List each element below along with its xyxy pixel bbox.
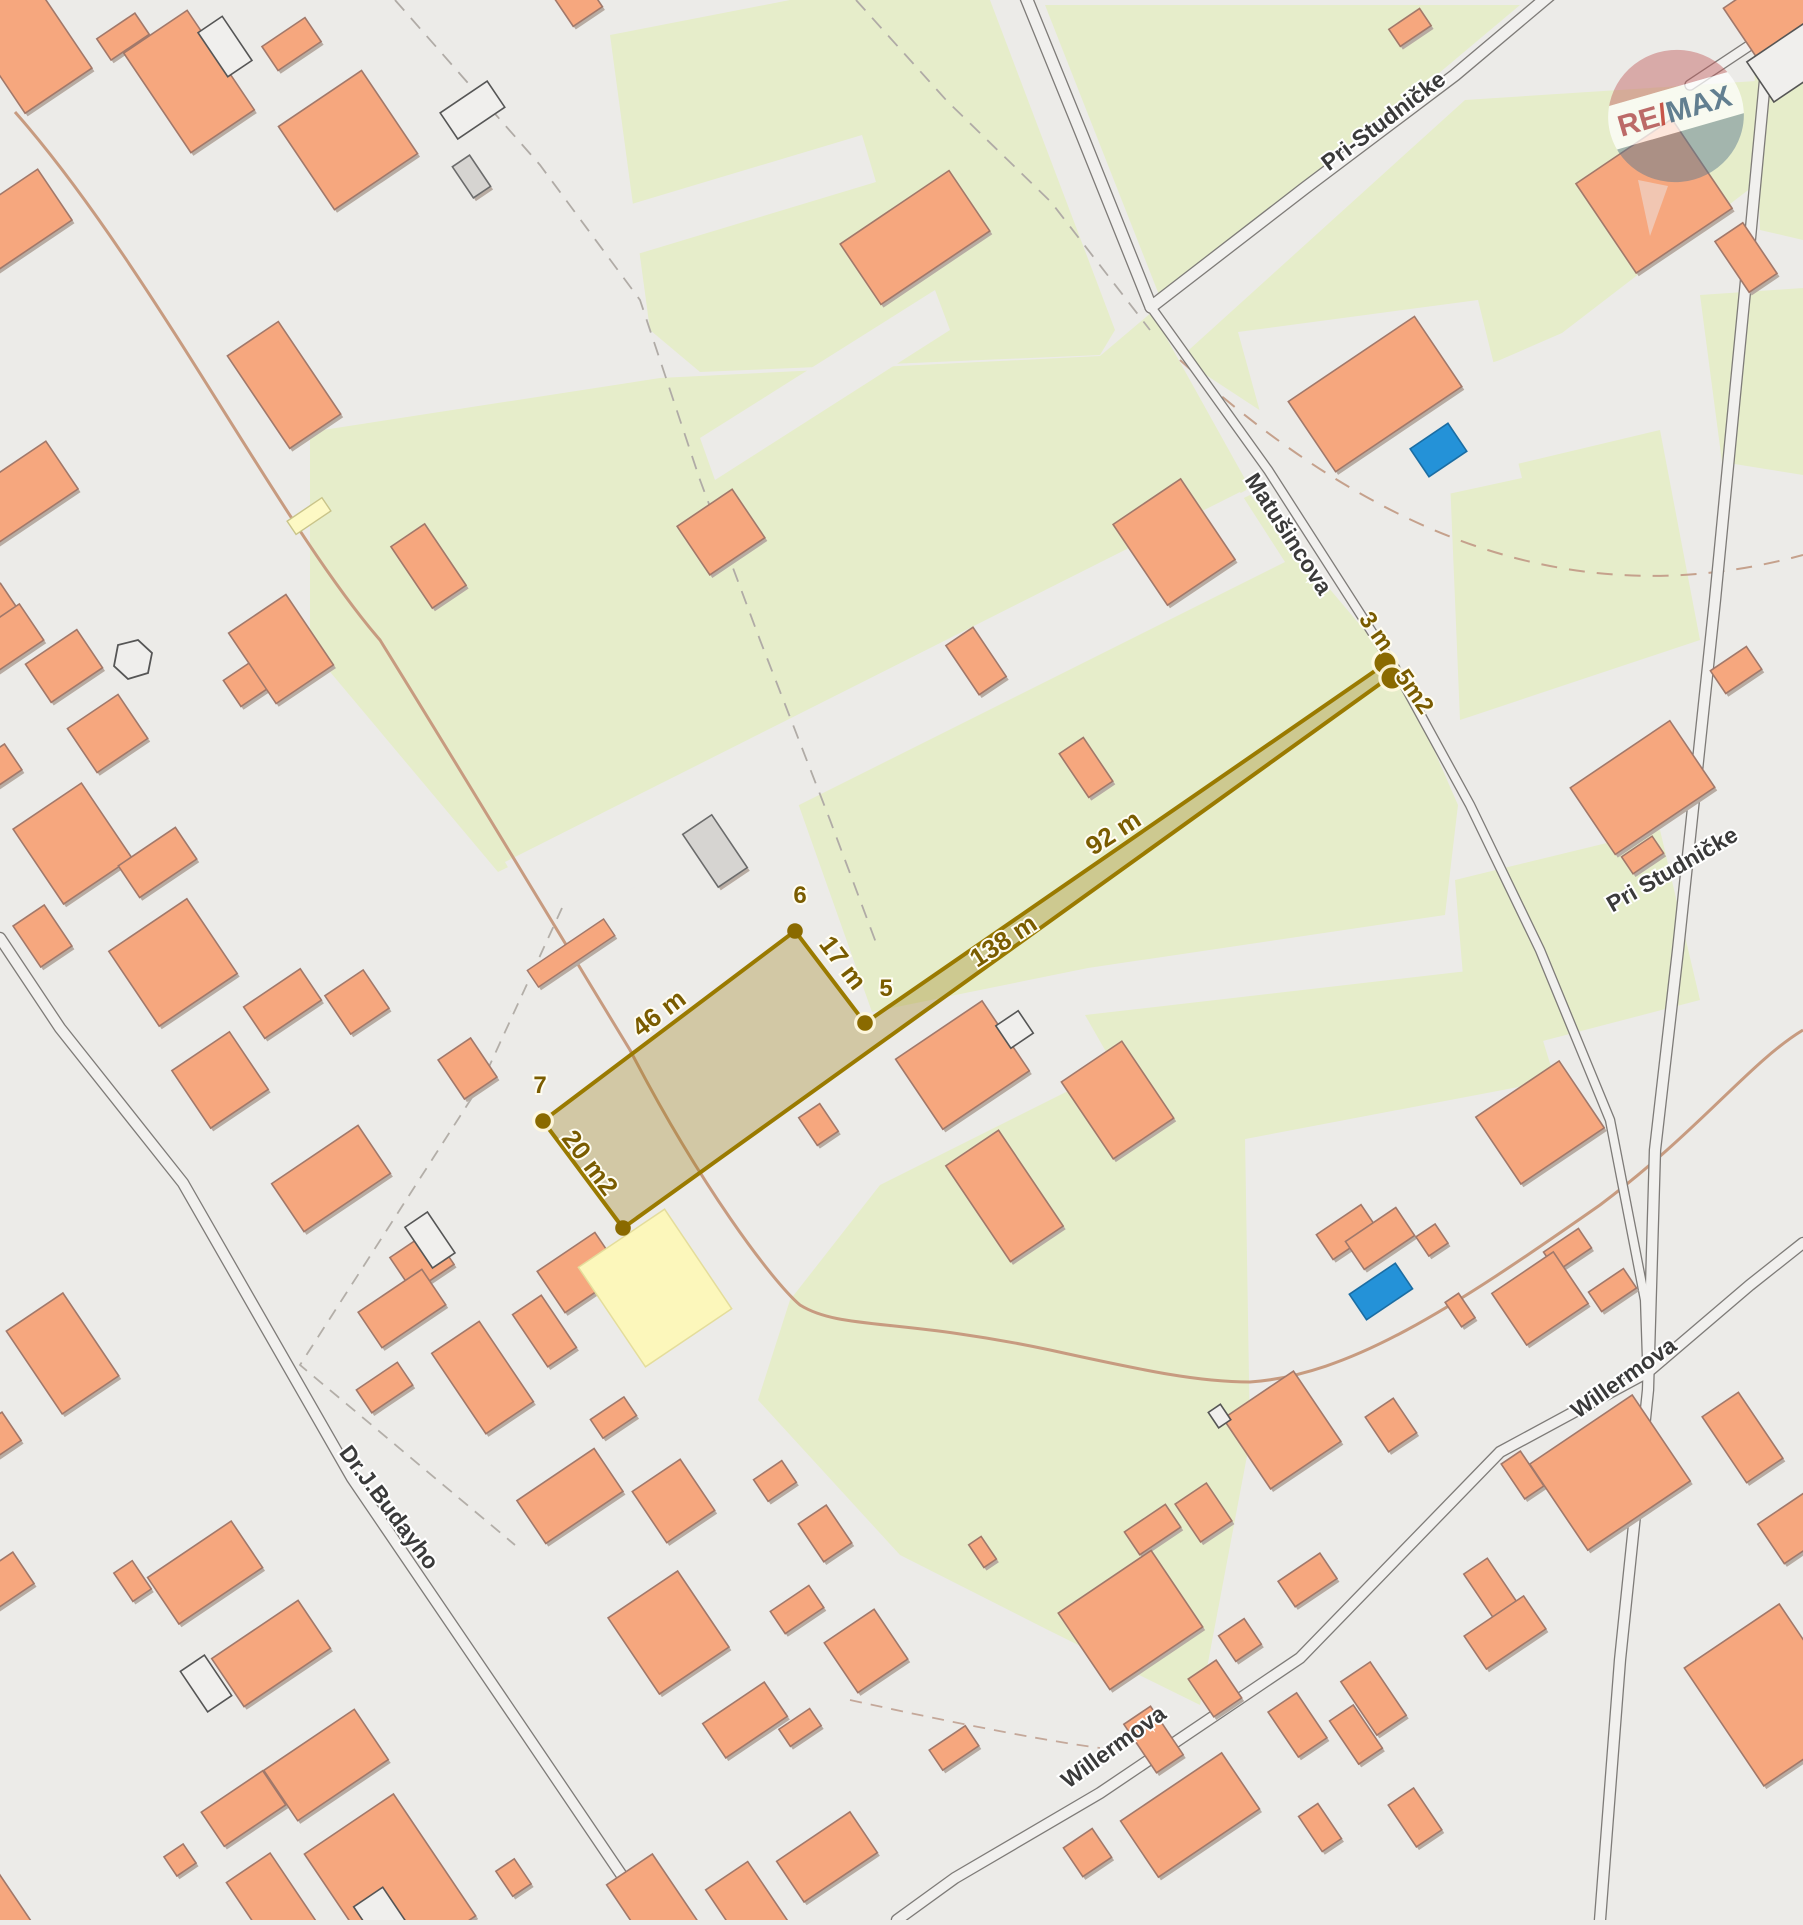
svg-text:6: 6 <box>793 882 806 909</box>
svg-text:7: 7 <box>533 1072 546 1099</box>
svg-text:5: 5 <box>879 975 892 1002</box>
